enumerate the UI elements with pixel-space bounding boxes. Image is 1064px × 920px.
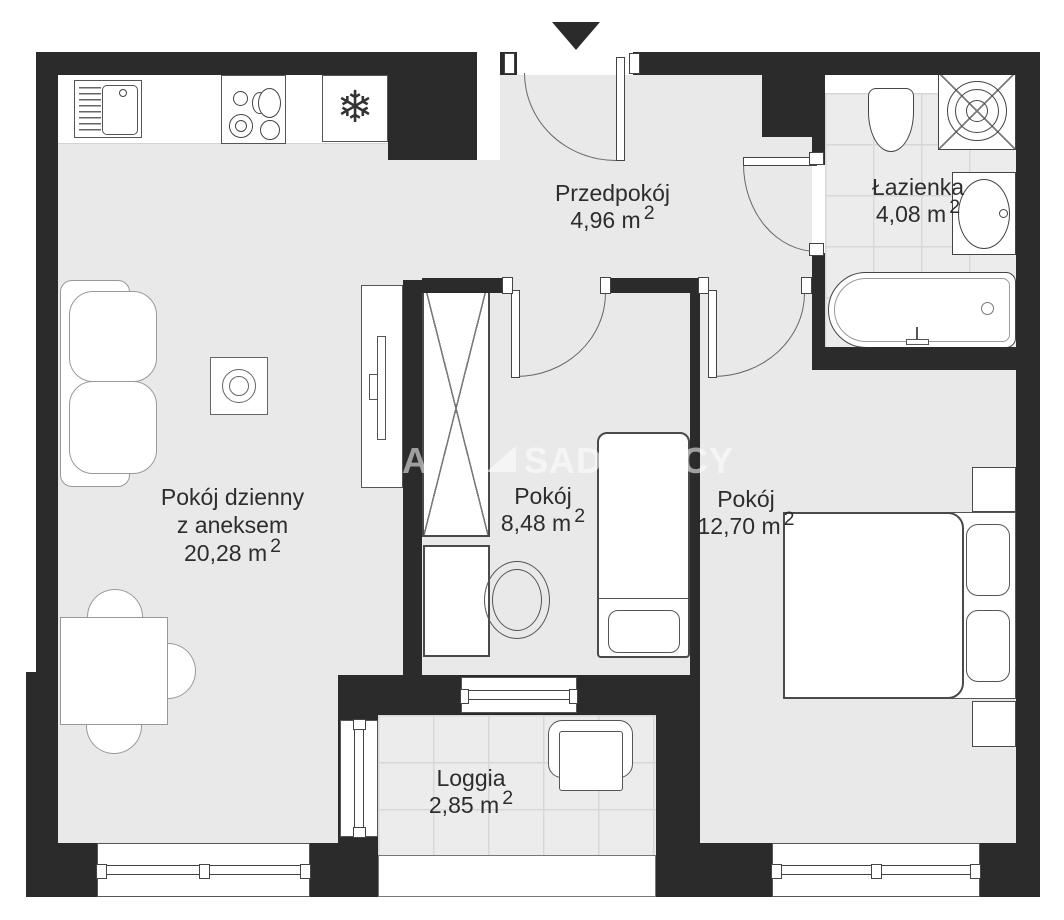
big-room-window: [772, 843, 980, 897]
fridge: ❄: [322, 75, 388, 142]
tub-faucet-base: [906, 339, 929, 345]
room-label-big-room: Pokój 12,70 m2: [680, 486, 812, 542]
burner: [235, 120, 247, 132]
door-hinge-mark: [809, 243, 824, 256]
room-label-hall: Przedpokój 4,96 m2: [535, 180, 690, 236]
sink-tap: [999, 209, 1008, 218]
room-area: 2,85 m2: [405, 792, 537, 821]
snowflake-icon: ❄: [337, 83, 374, 132]
room-name: Pokój: [478, 483, 608, 510]
room-area: 8,48 m2: [478, 510, 608, 539]
wall-bath-bedroom: [812, 347, 1040, 370]
room-label-bath: Łazienka 4,08 m2: [843, 174, 993, 230]
door-hinge-mark: [801, 277, 812, 294]
small-room-door-leaf: [511, 290, 520, 378]
sink-tap: [119, 89, 127, 97]
nightstand: [972, 701, 1016, 747]
sofa-cushion: [69, 291, 157, 382]
window-joint: [460, 689, 469, 704]
window-joint: [970, 864, 981, 879]
room-name: Loggia: [405, 765, 537, 792]
stove: [221, 75, 286, 144]
window-joint: [96, 864, 107, 879]
wall-right: [1016, 52, 1040, 897]
room-label-small-room: Pokój 8,48 m2: [478, 483, 608, 539]
burner: [258, 88, 281, 118]
wall-entrance-stub: [388, 52, 477, 160]
room-area: 4,96 m2: [535, 207, 690, 236]
desk-chair-inner: [492, 569, 542, 631]
room-area: 4,08 m2: [843, 201, 993, 230]
sink-drainer: [79, 87, 101, 133]
burner: [260, 120, 280, 140]
window-joint: [353, 827, 366, 838]
room-name: Przedpokój: [535, 180, 690, 207]
window-joint: [199, 864, 210, 879]
room-name: Pokój dzienny: [115, 483, 350, 511]
loggia-side-window: [340, 720, 378, 837]
room-name: z aneksem: [115, 511, 350, 539]
entrance-door-leaf: [616, 57, 625, 161]
loggia-top-window: [461, 677, 577, 713]
dining-table: [60, 617, 168, 725]
window-rail: [465, 690, 573, 700]
desk: [423, 545, 490, 657]
pillow: [608, 610, 680, 653]
tv-cabinet: [361, 285, 403, 488]
window-joint: [871, 864, 882, 879]
shower-drain: [966, 100, 988, 122]
pillow: [966, 610, 1010, 682]
room-area: 12,70 m2: [680, 513, 812, 542]
plant-inner: [229, 376, 249, 396]
bed-sheet-line: [599, 598, 688, 599]
living-room-window: [97, 843, 310, 897]
pillow: [966, 524, 1010, 596]
loggia-chair-seat: [559, 731, 623, 791]
burner: [233, 91, 248, 106]
wall-hall-left: [422, 278, 507, 293]
window-joint: [569, 689, 578, 704]
room-label-living: Pokój dzienny z aneksem 20,28 m2: [115, 483, 350, 569]
entrance-jamb-nook: [477, 52, 500, 160]
shower: [938, 72, 1016, 150]
kitchen-sink: [74, 80, 142, 138]
door-hinge-mark: [809, 152, 824, 165]
door-hinge-mark: [629, 53, 640, 74]
sofa-cushion: [69, 381, 157, 474]
tv: [377, 336, 386, 440]
nightstand: [972, 467, 1016, 512]
bathroom-door-leaf: [743, 157, 817, 166]
door-hinge-mark: [502, 277, 513, 294]
window-joint: [300, 864, 311, 879]
floor-plan: ❄: [0, 0, 1064, 920]
window-rail: [354, 724, 364, 833]
wall-left-upper: [36, 52, 58, 672]
watermark-logo-triangle-icon: [486, 446, 516, 472]
window-joint: [771, 864, 782, 879]
wall-top-right: [633, 52, 1040, 75]
room-area: 20,28 m2: [115, 539, 350, 569]
watermark-brand: SADURSCY: [524, 443, 734, 479]
room-label-loggia: Loggia 2,85 m2: [405, 765, 537, 821]
big-room-door-leaf: [708, 290, 717, 378]
watermark-letter: A: [402, 443, 429, 479]
entrance-arrow-icon: [552, 22, 600, 50]
door-hinge-mark: [600, 277, 611, 294]
wall-between-rooms: [690, 288, 700, 678]
door-hinge-mark: [504, 53, 515, 74]
window-joint: [353, 719, 366, 730]
door-hinge-mark: [698, 277, 709, 294]
tub-drain: [981, 302, 994, 315]
loggia-parapet: [378, 855, 656, 897]
bathtub: [828, 272, 1016, 348]
room-name: Łazienka: [843, 174, 993, 201]
side-table: [210, 357, 268, 415]
